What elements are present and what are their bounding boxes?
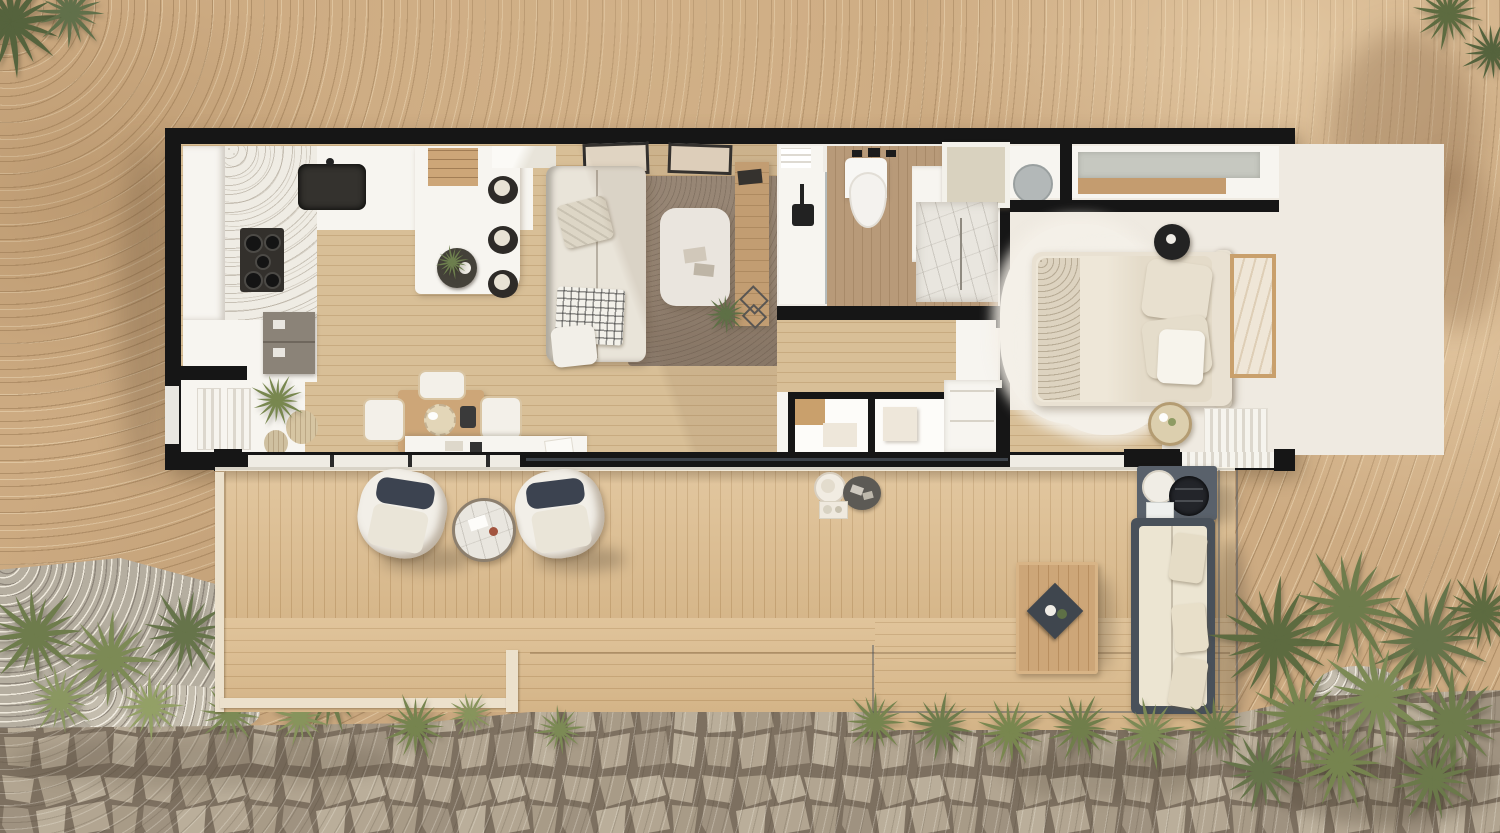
window-mullion: [486, 455, 490, 467]
south-window-sill: [248, 455, 520, 467]
outdoor-sofa: [1131, 518, 1215, 714]
nightstand: [1154, 224, 1190, 260]
double-bed: [1032, 252, 1232, 406]
small-plate: [823, 505, 832, 514]
wall-art-frame: [667, 143, 732, 175]
grill-cart: [1137, 466, 1217, 520]
serving-plate: [814, 472, 846, 504]
cup: [1045, 605, 1056, 616]
bedroom-closet-wall: [1010, 200, 1279, 212]
closet-shelf-wood: [795, 399, 825, 425]
closet-divider: [1060, 144, 1072, 200]
stool-cushion: [494, 180, 510, 196]
wall-faucet: [886, 150, 896, 157]
flower-leaves: [1168, 418, 1176, 426]
stool-cushion: [494, 274, 510, 290]
cabinet-handle: [273, 320, 285, 329]
small-tray: [819, 501, 848, 519]
entry-shelf: [779, 146, 823, 172]
glass-railing: [872, 711, 1238, 713]
bar-stool: [488, 270, 518, 298]
cabinet-line: [950, 420, 994, 422]
coffee-table: [660, 208, 730, 306]
floor-plan-render: [0, 0, 1500, 833]
towels: [781, 148, 811, 168]
seat-cushion: [530, 503, 592, 554]
knit-throw: [1038, 258, 1080, 400]
gas-cooktop: [240, 228, 284, 292]
coffee-table-books: [693, 263, 714, 277]
table-tray: [460, 406, 476, 428]
grill: [1169, 476, 1209, 516]
round-side-table: [452, 498, 516, 562]
burner: [264, 272, 281, 289]
bar-stool: [488, 176, 518, 204]
closet-shelf: [883, 407, 917, 441]
wall-faucet: [868, 148, 880, 157]
burner: [264, 234, 281, 251]
louver-door: [227, 388, 251, 450]
flowers: [1159, 413, 1168, 422]
dining-chair: [363, 398, 405, 442]
plant-basket-pot: [286, 410, 318, 444]
window-sill: [492, 146, 556, 168]
house-shadow-on-ground: [118, 140, 170, 480]
grill-grate: [1175, 488, 1203, 490]
louver-door: [197, 388, 221, 450]
sliding-door-glass-line: [526, 458, 1008, 461]
woven-placemat: [424, 404, 456, 436]
bedroom-window-bottom: [1204, 408, 1268, 454]
loft-stairs: [428, 148, 478, 186]
cabinet-handle: [273, 348, 285, 357]
mirror-cabinet: [942, 142, 1010, 208]
magazine: [468, 515, 489, 532]
tray-items: [862, 491, 873, 500]
glass-railing: [1236, 470, 1238, 713]
wardrobe-floor-wood: [1078, 178, 1226, 194]
striped-pillow: [555, 195, 614, 250]
glass-railing: [872, 645, 874, 713]
plant-shadow: [10, 735, 390, 790]
window-mullion: [408, 455, 412, 467]
white-pillow: [550, 324, 598, 368]
wall-faucet: [852, 150, 862, 157]
dining-chair: [418, 370, 466, 400]
l-shaped-sofa: [546, 166, 646, 362]
shower-arm: [800, 184, 804, 206]
deck-trim-bottom: [220, 698, 512, 708]
flowers: [428, 412, 438, 420]
appliance-cabinet: [944, 380, 1002, 453]
outdoor-pillow: [1168, 532, 1208, 584]
cabinet-line: [950, 390, 994, 392]
console-table: [735, 162, 769, 326]
stool-cushion: [494, 230, 510, 246]
deck-step-edge: [506, 650, 518, 712]
small-plant: [1057, 609, 1067, 619]
cup: [1166, 234, 1176, 244]
glass-railing: [1218, 470, 1220, 710]
bar-stool: [488, 226, 518, 254]
marble-shower-tray: [916, 202, 998, 302]
west-window: [165, 386, 179, 444]
closet-shelf: [823, 423, 857, 447]
kitchen-tall-cabinets: [183, 146, 225, 320]
window-mullion: [330, 455, 334, 467]
bathroom-wall: [777, 306, 1000, 320]
burner: [244, 234, 263, 253]
decor-object: [470, 442, 482, 452]
wall-post: [1274, 449, 1295, 471]
outdoor-pillow: [1171, 602, 1210, 653]
small-plate: [835, 506, 842, 513]
deck-edge-board-seam: [530, 652, 1230, 654]
south-window-sill: [1010, 455, 1124, 467]
bedroom-wall-art: [1230, 254, 1276, 378]
dark-base-cabinet: [263, 312, 315, 374]
deck-threshold-sill: [215, 467, 1235, 471]
wardrobe: [1072, 146, 1279, 198]
boiler: [1013, 164, 1053, 204]
faucet: [326, 158, 334, 166]
cup: [459, 262, 471, 274]
palm-shadow: [1000, 745, 1200, 800]
kitchen-sink: [298, 164, 366, 210]
bed-pillow: [1140, 258, 1213, 325]
palm-shadow: [1270, 745, 1500, 825]
house: [165, 128, 1295, 470]
cabinet-divider: [263, 341, 315, 343]
wire-basket: [742, 304, 767, 329]
shower-drain-line: [960, 218, 962, 290]
interior-wall-stub: [181, 366, 247, 380]
utility-closet: [1010, 146, 1060, 198]
dining-chair: [480, 396, 522, 440]
shower-head: [792, 204, 814, 226]
bedroom-wall: [996, 388, 1010, 452]
burner: [244, 271, 263, 290]
deck-trim-left: [215, 472, 224, 712]
cup: [489, 527, 498, 536]
serving-tray: [437, 248, 477, 288]
plate-center: [821, 479, 835, 493]
grill-grate: [1175, 500, 1203, 502]
outdoor-coffee-table: [1016, 562, 1098, 674]
round-tray: [843, 476, 881, 510]
seat-cushion: [366, 502, 430, 555]
burner: [255, 254, 271, 270]
wardrobe-slider-gray: [1078, 152, 1260, 178]
coffee-table-books: [683, 247, 707, 264]
laptop: [737, 169, 762, 185]
books: [445, 441, 463, 451]
bed-pillow-small: [1157, 329, 1206, 385]
flower-side-table: [1148, 402, 1192, 446]
